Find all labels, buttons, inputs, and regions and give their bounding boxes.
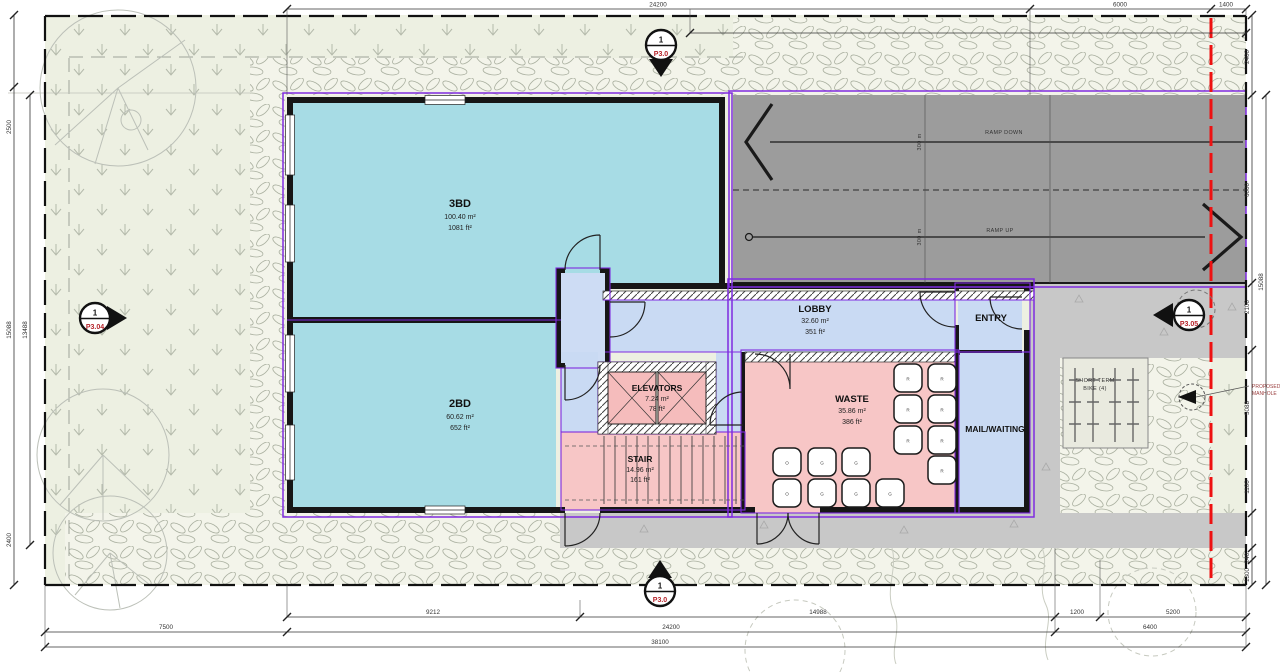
- dim-label: 13488: [22, 321, 29, 339]
- dim-label: 15088: [6, 321, 13, 339]
- dim-label: 38100: [651, 639, 669, 646]
- planting-bed-northeast: [733, 18, 1246, 95]
- svg-text:1081 ft²: 1081 ft²: [448, 225, 472, 232]
- room-label-lobby: LOBBY: [798, 304, 832, 315]
- bike-label-2: BIKE (4): [1083, 386, 1107, 392]
- dim-label: 9212: [426, 609, 441, 616]
- room-label-2bd: 2BD: [449, 398, 471, 410]
- dim-label: 1200: [1070, 609, 1085, 616]
- dim-label: 5200: [1166, 609, 1181, 616]
- waste-north-masonry-wall: [745, 352, 955, 362]
- room-label-3bd: 3BD: [449, 198, 471, 210]
- dim-label: 240: [1244, 552, 1251, 563]
- dim-label: 1100: [1244, 480, 1251, 494]
- parking-ramp: RAMP DOWN RAMP UP 300 m 300 m: [733, 95, 1246, 283]
- svg-text:P3.05: P3.05: [1180, 321, 1198, 328]
- bin-label: G: [888, 492, 892, 497]
- svg-text:P3.0: P3.0: [654, 51, 669, 58]
- svg-text:100.40 m²: 100.40 m²: [444, 214, 476, 221]
- planting-bed-west: [250, 58, 285, 585]
- lobby-north-masonry-wall: [603, 291, 1034, 300]
- room-label-stair: STAIR: [628, 454, 653, 464]
- svg-text:161 ft²: 161 ft²: [630, 477, 651, 484]
- dim-label: 6000: [1244, 183, 1251, 198]
- vestibule: [561, 273, 605, 363]
- svg-text:7.24 m²: 7.24 m²: [645, 396, 669, 403]
- bin-label: G: [854, 461, 858, 466]
- dim-label: 7500: [159, 624, 174, 631]
- bin-label: G: [820, 461, 824, 466]
- svg-text:32.60 m²: 32.60 m²: [801, 318, 829, 325]
- room-3bd: [292, 102, 719, 283]
- bike-label-1: SHORT TERM: [1075, 378, 1114, 384]
- room-2bd: [292, 323, 556, 508]
- svg-text:P3.0: P3.0: [653, 597, 668, 604]
- dim-label: 5088: [1244, 401, 1251, 416]
- dim-label: 24200: [649, 2, 667, 9]
- floor-plan-canvas: RAMP DOWN RAMP UP 300 m 300 m: [0, 0, 1280, 672]
- svg-text:P3.04: P3.04: [86, 324, 104, 331]
- dim-label: 1400: [1219, 2, 1234, 9]
- svg-text:386 ft²: 386 ft²: [842, 419, 863, 426]
- svg-text:35.86 m²: 35.86 m²: [838, 408, 866, 415]
- room-label-entry: ENTRY: [975, 313, 1008, 324]
- svg-text:1: 1: [659, 36, 664, 45]
- ramp-length-label-2: 300 m: [917, 228, 923, 245]
- dim-label: 2400: [1244, 50, 1251, 65]
- ramp-length-label-1: 300 m: [917, 133, 923, 150]
- svg-text:1: 1: [1187, 306, 1192, 315]
- dim-label: 24200: [662, 624, 680, 631]
- svg-text:351 ft²: 351 ft²: [805, 329, 826, 336]
- dim-label: 2100: [1244, 300, 1251, 315]
- manhole-label-2: MANHOLE: [1252, 391, 1277, 397]
- dim-label: 14988: [809, 609, 827, 616]
- ramp-up-label: RAMP UP: [986, 228, 1013, 234]
- room-label-waste: WASTE: [835, 394, 869, 405]
- room-entry: [958, 300, 1022, 350]
- dim-label: 2500: [6, 120, 13, 135]
- planting-bed-south-west: [65, 513, 560, 585]
- bin-label: G: [854, 492, 858, 497]
- dim-label: 15088: [1258, 273, 1265, 291]
- svg-text:1: 1: [658, 582, 663, 591]
- svg-text:60.62 m²: 60.62 m²: [446, 414, 474, 421]
- dim-label: 6000: [1113, 2, 1128, 9]
- room-label-elevators: ELEVATORS: [632, 383, 683, 393]
- svg-text:652 ft²: 652 ft²: [450, 425, 471, 432]
- dim-label: 6400: [1143, 624, 1158, 631]
- ramp-down-label: RAMP DOWN: [985, 130, 1023, 136]
- bike-parking: SHORT TERM BIKE (4): [1063, 358, 1148, 448]
- dim-label: 1300: [1244, 568, 1251, 583]
- room-label-mail: MAIL/WAITING: [965, 424, 1025, 434]
- svg-text:14.96 m²: 14.96 m²: [626, 467, 654, 474]
- dim-label: 2400: [6, 533, 13, 548]
- floor-plan-page: RAMP DOWN RAMP UP 300 m 300 m: [0, 0, 1280, 672]
- room-lobby: [605, 300, 955, 352]
- svg-text:1: 1: [93, 309, 98, 318]
- bin-label: O: [785, 492, 789, 497]
- svg-text:78 ft²: 78 ft²: [649, 406, 666, 413]
- bin-label: G: [820, 492, 824, 497]
- bin-label: O: [785, 461, 789, 466]
